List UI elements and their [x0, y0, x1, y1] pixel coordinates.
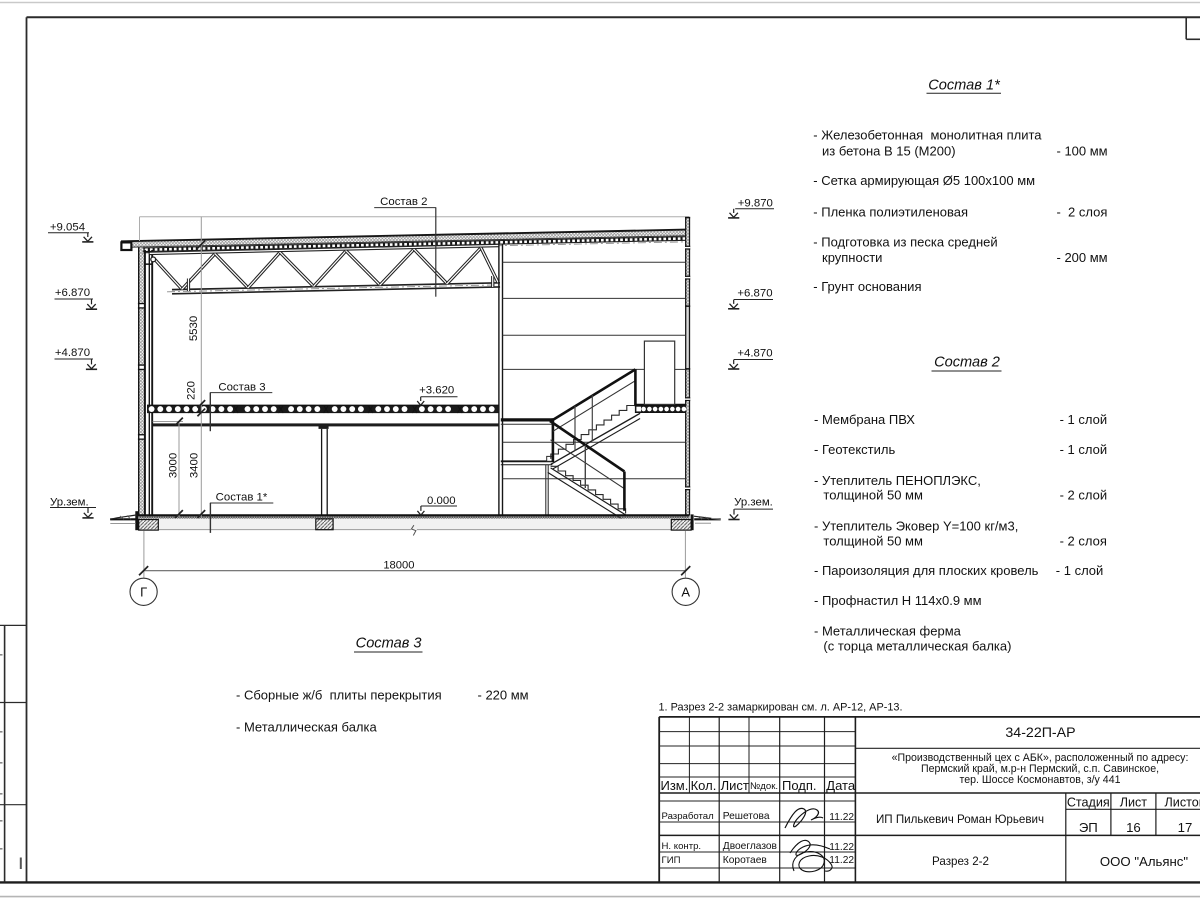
svg-text:+4.870: +4.870 [55, 347, 90, 359]
svg-text:16: 16 [1126, 820, 1141, 835]
svg-text:+3.620: +3.620 [419, 385, 454, 397]
svg-text:- 100 мм: - 100 мм [1057, 143, 1108, 158]
svg-text:11.22: 11.22 [829, 855, 854, 866]
svg-text:Состав 3: Состав 3 [356, 636, 422, 652]
svg-text:крупности: крупности [822, 250, 882, 265]
svg-text:Кол.: Кол. [691, 778, 717, 793]
svg-text:толщиной 50 мм: толщиной 50 мм [823, 534, 923, 549]
svg-text:- Геотекстиль: - Геотекстиль [814, 442, 895, 457]
svg-text:ГИП: ГИП [662, 855, 681, 866]
svg-text:+9.054: +9.054 [50, 221, 85, 233]
svg-text:- Сетка армирующая Ø5 100х100: - Сетка армирующая Ø5 100х100 мм [813, 173, 1035, 188]
svg-text:34-22П-АР: 34-22П-АР [1005, 725, 1075, 741]
svg-text:5530: 5530 [188, 316, 200, 341]
svg-text:Состав 1*: Состав 1* [216, 492, 268, 504]
svg-text:А: А [681, 585, 690, 600]
svg-text:Стадия: Стадия [1067, 795, 1110, 809]
svg-text:Листов: Листов [1165, 795, 1200, 809]
svg-text:Коротаев: Коротаев [723, 855, 767, 866]
svg-text:- 1 слой: - 1 слой [1060, 442, 1108, 457]
svg-text:из бетона В 15 (М200): из бетона В 15 (М200) [822, 143, 956, 158]
svg-text:- Подготовка из песка средней: - Подготовка из песка средней [813, 235, 997, 250]
svg-text:ИП Пилькевич Роман Юрьевич: ИП Пилькевич Роман Юрьевич [876, 813, 1044, 826]
svg-text:Состав 3: Состав 3 [218, 382, 265, 394]
svg-text:- Пленка полиэтиленовая: - Пленка полиэтиленовая [813, 205, 968, 220]
svg-text:Разрез 2-2: Разрез 2-2 [932, 855, 989, 868]
svg-text:- 2 слоя: - 2 слоя [1057, 205, 1108, 220]
svg-text:Ур.зем.: Ур.зем. [50, 496, 89, 508]
svg-text:11.22: 11.22 [829, 842, 854, 853]
svg-text:- Мембрана ПВХ: - Мембрана ПВХ [814, 412, 915, 427]
svg-text:Состав 2: Состав 2 [934, 355, 1000, 371]
svg-text:- Утеплитель ПЕНОПЛЭКС,: - Утеплитель ПЕНОПЛЭКС, [814, 473, 981, 488]
svg-text:17: 17 [1178, 820, 1193, 835]
svg-text:+4.870: +4.870 [737, 348, 772, 360]
svg-text:- Железобетонная монолитная п: - Железобетонная монолитная плита [813, 128, 1042, 143]
svg-text:- 2 слой: - 2 слой [1060, 487, 1108, 502]
svg-text:+6.870: +6.870 [737, 288, 772, 300]
svg-text:220: 220 [186, 381, 198, 400]
svg-text:толщиной 50 мм: толщиной 50 мм [823, 487, 923, 502]
svg-text:ООО "Альянс": ООО "Альянс" [1100, 854, 1188, 869]
svg-text:- Профнастил Н 114х0.9 мм: - Профнастил Н 114х0.9 мм [814, 593, 982, 608]
svg-text:Лист: Лист [721, 778, 749, 793]
svg-text:- 220 мм: - 220 мм [478, 688, 529, 703]
svg-text:- Металлическая ферма: - Металлическая ферма [814, 623, 962, 638]
svg-text:- Металлическая балка: - Металлическая балка [236, 720, 377, 735]
svg-text:Лист: Лист [1120, 795, 1148, 809]
svg-text:Г: Г [140, 585, 147, 600]
svg-text:тер. Шоссе Космонавтов, з/у 44: тер. Шоссе Космонавтов, з/у 441 [960, 774, 1121, 786]
svg-text:+6.870: +6.870 [55, 287, 90, 299]
svg-text:(с торца металлическая балка): (с торца металлическая балка) [823, 639, 1011, 654]
svg-text:Решетова: Решетова [723, 811, 770, 822]
svg-text:- 200 мм: - 200 мм [1057, 250, 1108, 265]
svg-text:- 1 слой: - 1 слой [1056, 563, 1104, 578]
svg-text:ЭП: ЭП [1079, 820, 1098, 835]
svg-text:18000: 18000 [383, 559, 414, 571]
svg-text:11.22: 11.22 [829, 812, 854, 823]
svg-text:- Грунт основания: - Грунт основания [813, 279, 921, 294]
svg-text:Двоеглазов: Двоеглазов [723, 841, 777, 852]
svg-text:+9.870: +9.870 [738, 197, 773, 209]
svg-text:- 2 слоя: - 2 слоя [1060, 534, 1107, 549]
svg-text:- 1 слой: - 1 слой [1060, 412, 1108, 427]
svg-text:№док.: №док. [750, 781, 778, 792]
svg-text:Состав 1*: Состав 1* [928, 77, 1001, 93]
svg-text:- Утеплитель Эковер Y=100 кг/м: - Утеплитель Эковер Y=100 кг/м3, [814, 519, 1018, 534]
svg-text:Ур.зем.: Ур.зем. [734, 497, 773, 509]
svg-text:1. Разрез 2-2 замаркирован см.: 1. Разрез 2-2 замаркирован см. л. АР-12,… [659, 702, 903, 714]
svg-text:Подп.: Подп. [782, 778, 817, 793]
svg-text:Состав 2: Состав 2 [380, 196, 427, 208]
svg-text:3400: 3400 [188, 453, 200, 478]
svg-text:Разработал: Разработал [662, 811, 714, 822]
svg-text:3000: 3000 [167, 453, 179, 478]
svg-text:Изм.: Изм. [661, 778, 689, 793]
svg-text:Н. контр.: Н. контр. [662, 841, 702, 852]
svg-text:Дата: Дата [826, 778, 856, 793]
svg-text:- Сборные ж/б плиты перекрыти: - Сборные ж/б плиты перекрытия [236, 688, 442, 703]
svg-text:- Пароизоляция для плоских кро: - Пароизоляция для плоских кровель [814, 563, 1039, 578]
svg-text:0.000: 0.000 [427, 495, 456, 507]
